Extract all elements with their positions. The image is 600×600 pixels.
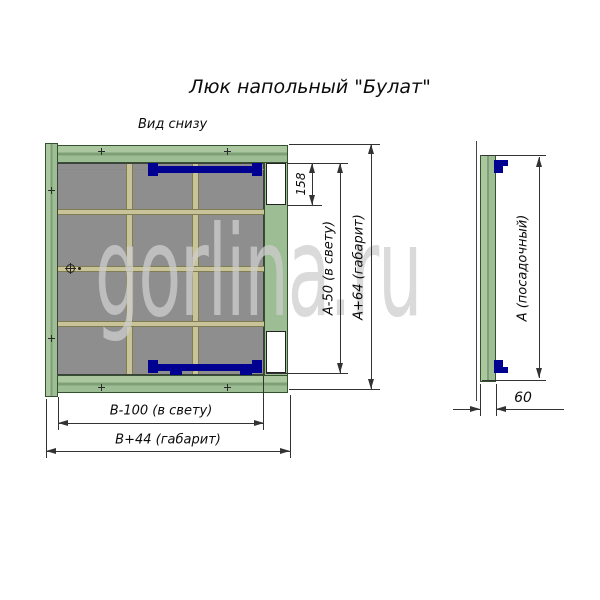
arrowhead bbox=[46, 448, 56, 454]
floor-plane-line bbox=[476, 141, 477, 401]
extension-line bbox=[482, 380, 546, 381]
dimension-line-overall-width bbox=[46, 451, 290, 452]
frame-top-flange bbox=[57, 145, 288, 163]
hinge-bar-top-tab-left bbox=[148, 163, 158, 176]
hinge-bracket-top-lower bbox=[494, 166, 503, 173]
drawing-canvas: Люк напольный "Булат" Вид снизу bbox=[0, 0, 600, 600]
extension-line bbox=[289, 144, 380, 145]
screw-marker bbox=[224, 148, 231, 155]
arrowhead bbox=[280, 448, 290, 454]
arrowhead bbox=[496, 406, 506, 412]
screw-marker bbox=[224, 384, 231, 391]
arrowhead bbox=[58, 420, 68, 426]
dimension-label-seat-height: А (посадочный) bbox=[516, 215, 531, 322]
arrowhead bbox=[470, 406, 480, 412]
hinge-bracket-bottom bbox=[494, 367, 508, 373]
screw-marker bbox=[98, 384, 105, 391]
hinge-bracket-bottom-upper bbox=[494, 360, 503, 367]
arrowhead bbox=[309, 163, 315, 173]
dimension-label-depth: 60 bbox=[514, 390, 532, 406]
hinge-bar-bottom bbox=[150, 364, 260, 371]
dimension-label-clear-width: В-100 (в свету) bbox=[110, 404, 213, 419]
hinge-bar-bottom-tab-right bbox=[252, 360, 262, 373]
lock-pin-marker bbox=[66, 264, 75, 273]
extension-line bbox=[290, 395, 291, 458]
watermark: gorlina.ru bbox=[95, 210, 421, 335]
dimension-label-overall-height: А+64 (габарит) bbox=[352, 214, 367, 320]
dimension-label-overall-width: В+44 (габарит) bbox=[115, 433, 221, 448]
arrowhead bbox=[309, 195, 315, 205]
arrowhead bbox=[254, 420, 264, 426]
extension-line bbox=[266, 373, 348, 374]
dimension-line-clear-width bbox=[58, 423, 264, 424]
screw-marker bbox=[48, 187, 55, 194]
arrowhead bbox=[337, 363, 343, 373]
drawing-title: Люк напольный "Булат" bbox=[130, 76, 490, 98]
dimension-line-seat-height bbox=[539, 157, 540, 378]
extension-line bbox=[287, 205, 322, 206]
hinge-bar-bottom-tab-left bbox=[148, 360, 158, 373]
arrowhead bbox=[337, 163, 343, 173]
arrowhead bbox=[368, 144, 374, 154]
hinge-bar-top-tab-right bbox=[252, 163, 262, 176]
dimension-line-clear-height bbox=[340, 163, 341, 373]
dimension-line-depth bbox=[496, 409, 564, 410]
screw-marker bbox=[98, 148, 105, 155]
arrowhead bbox=[368, 379, 374, 389]
extension-line bbox=[289, 389, 380, 390]
frame-bottom-flange bbox=[57, 375, 288, 393]
view-label: Вид снизу bbox=[138, 117, 207, 132]
hinge-bar-top bbox=[150, 166, 260, 173]
hinge-cutout-top bbox=[266, 163, 286, 205]
dimension-label-158: 158 bbox=[294, 173, 308, 196]
screw-marker bbox=[48, 335, 55, 342]
arrowhead bbox=[536, 157, 542, 167]
extension-line bbox=[480, 384, 481, 416]
pin-dot bbox=[78, 267, 81, 270]
hinge-foot bbox=[240, 371, 252, 375]
hinge-foot bbox=[170, 371, 182, 375]
profile-bar bbox=[480, 155, 496, 382]
arrowhead bbox=[536, 368, 542, 378]
extension-line bbox=[482, 155, 546, 156]
dimension-label-clear-height: А-50 (в свету) bbox=[322, 221, 337, 315]
dimension-line-overall-height bbox=[371, 144, 372, 389]
